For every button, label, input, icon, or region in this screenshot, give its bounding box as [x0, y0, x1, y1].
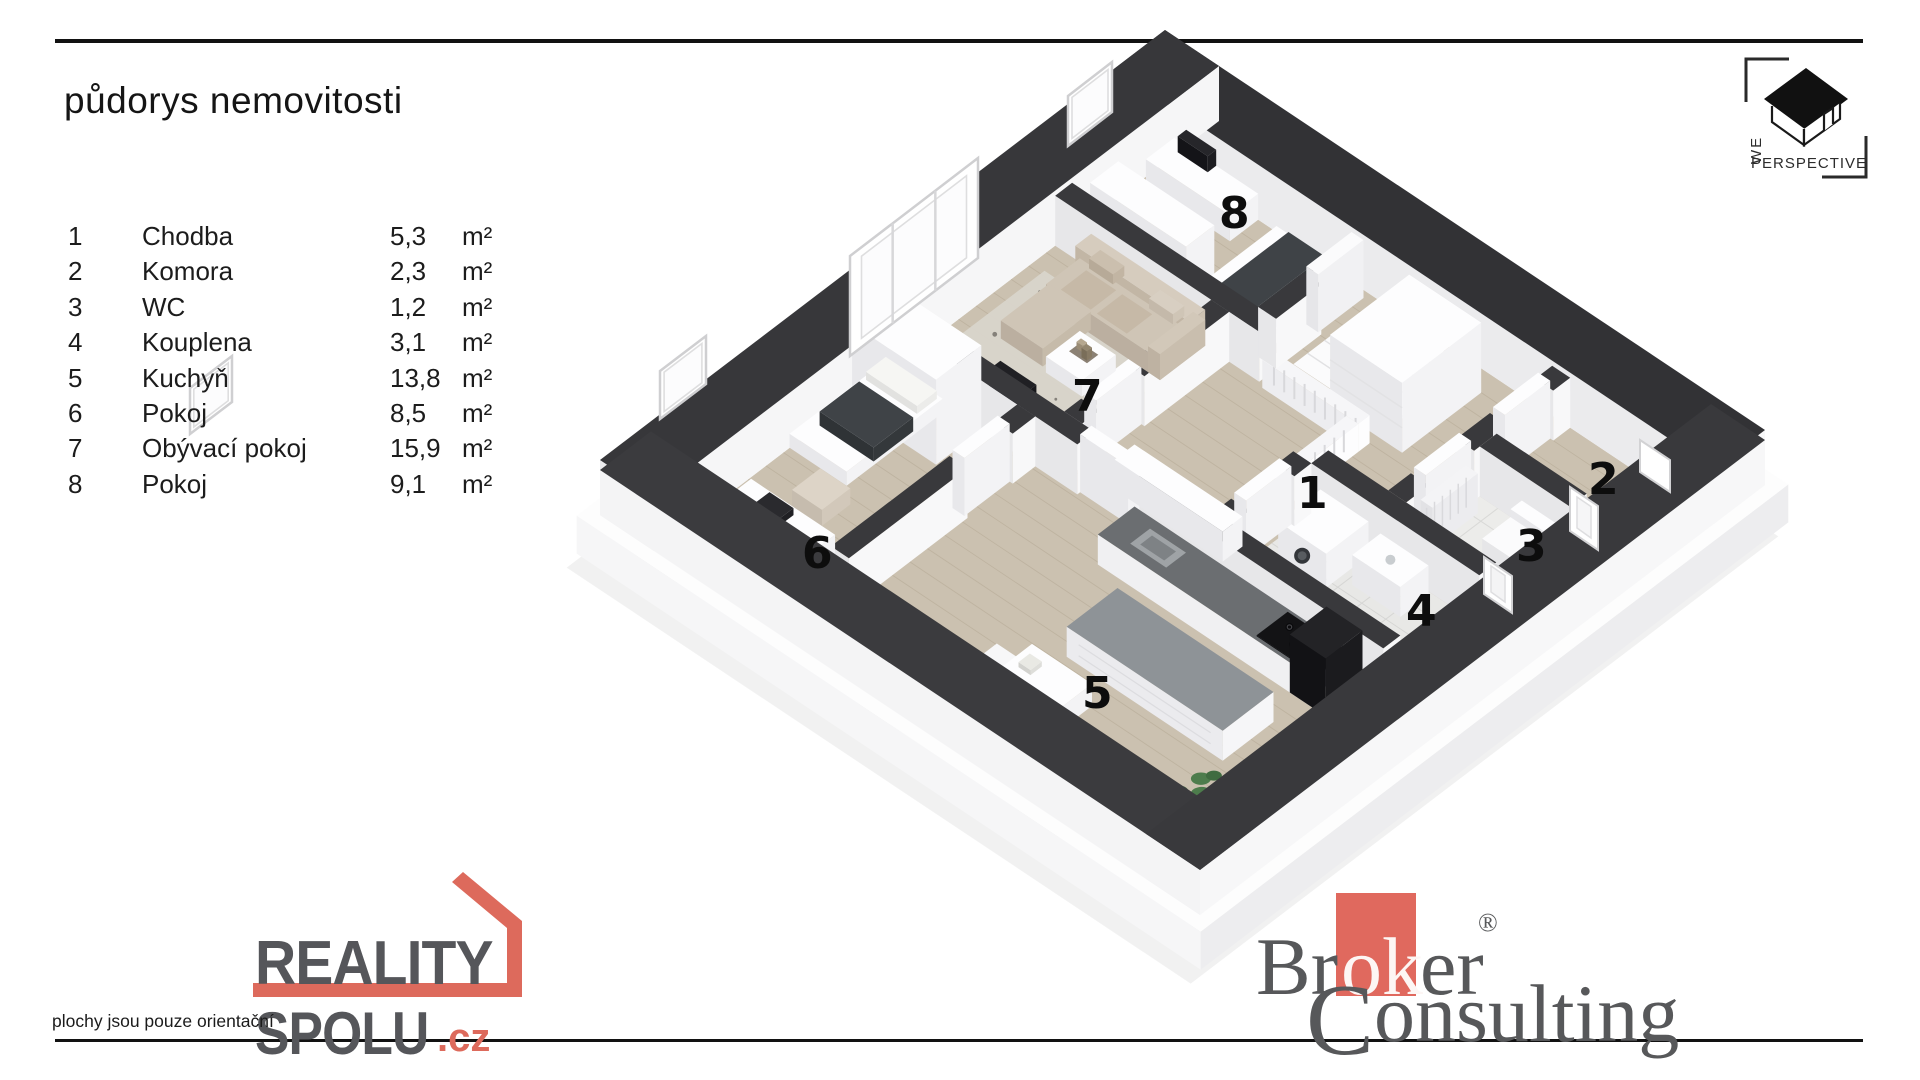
room-area: 15,9 — [390, 431, 462, 466]
room-area: 8,5 — [390, 396, 462, 431]
room-area: 9,1 — [390, 467, 462, 502]
room-unit: m² — [462, 325, 522, 360]
room-name: Kouplena — [142, 325, 390, 360]
legend-row: 7 Obývací pokoj 15,9 m² — [68, 431, 522, 466]
room-name: Chodba — [142, 219, 390, 254]
room-name: Pokoj — [142, 396, 390, 431]
room-unit: m² — [462, 431, 522, 466]
consulting-text: onsulting — [1374, 967, 1679, 1061]
room-unit: m² — [462, 254, 522, 289]
perspective-text: PERSPECTIVE — [1751, 155, 1867, 172]
registered-mark: ® — [1478, 908, 1498, 938]
room-unit: m² — [462, 290, 522, 325]
reality-text: REALITY — [255, 928, 493, 999]
legend-row: 3 WC 1,2 m² — [68, 290, 522, 325]
room-name: Pokoj — [142, 467, 390, 502]
floorplan-page: půdorys nemovitosti 1 Chodba 5,3 m² 2 Ko… — [0, 0, 1920, 1080]
room-unit: m² — [462, 396, 522, 431]
room-area: 13,8 — [390, 361, 462, 396]
room-name: Komora — [142, 254, 390, 289]
cz-text: .cz — [437, 1016, 490, 1061]
room-legend: 1 Chodba 5,3 m² 2 Komora 2,3 m² 3 WC 1,2… — [68, 219, 522, 502]
spolu-text: SPOLU — [255, 999, 428, 1068]
room-area: 1,2 — [390, 290, 462, 325]
room-name: Kuchyň — [142, 361, 390, 396]
room-number: 2 — [68, 254, 142, 289]
legend-row: 2 Komora 2,3 m² — [68, 254, 522, 289]
room-number: 7 — [68, 431, 142, 466]
room-number: 8 — [68, 467, 142, 502]
house-icon — [1764, 68, 1848, 145]
room-unit: m² — [462, 219, 522, 254]
legend-row: 4 Kouplena 3,1 m² — [68, 325, 522, 360]
room-unit: m² — [462, 467, 522, 502]
room-area: 3,1 — [390, 325, 462, 360]
legend-row: 6 Pokoj 8,5 m² — [68, 396, 522, 431]
room-name: Obývací pokoj — [142, 431, 390, 466]
disclaimer-text: plochy jsou pouze orientační — [52, 1011, 274, 1032]
room-unit: m² — [462, 361, 522, 396]
reality-spolu-shapes — [0, 0, 1920, 1080]
legend-row: 8 Pokoj 9,1 m² — [68, 467, 522, 502]
legend-row: 1 Chodba 5,3 m² — [68, 219, 522, 254]
room-area: 5,3 — [390, 219, 462, 254]
room-number: 3 — [68, 290, 142, 325]
room-number: 6 — [68, 396, 142, 431]
room-area: 2,3 — [390, 254, 462, 289]
room-number: 4 — [68, 325, 142, 360]
legend-row: 5 Kuchyň 13,8 m² — [68, 361, 522, 396]
consulting-initial: C — [1306, 962, 1374, 1079]
room-number: 5 — [68, 361, 142, 396]
room-name: WC — [142, 290, 390, 325]
room-number: 1 — [68, 219, 142, 254]
